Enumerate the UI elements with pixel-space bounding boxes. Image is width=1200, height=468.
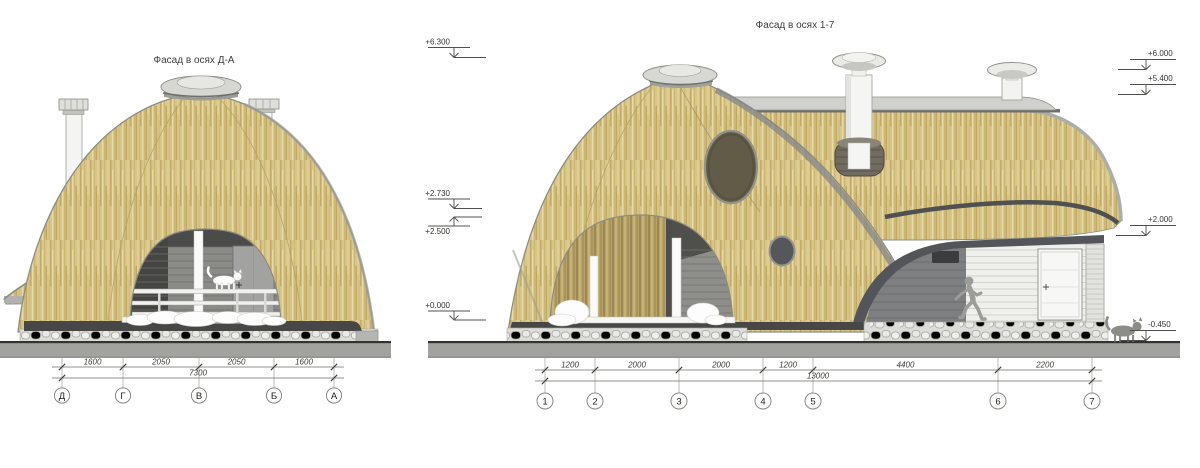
left-skylight-dome [161,76,241,101]
svg-text:+2.730: +2.730 [425,189,450,198]
left-porch-post [194,231,203,323]
svg-text:+2.000: +2.000 [1148,215,1173,224]
right-skylight-dome [643,65,717,89]
round-window-large [705,131,757,203]
dim-segment: 1600 [84,358,102,367]
svg-text:+2.500: +2.500 [425,227,450,236]
elevation-mark: +0.000 [425,301,486,320]
svg-text:+6.000: +6.000 [1148,49,1173,58]
annex-corner-boards [1086,244,1104,323]
drawing-sheet: Фасад в осях Д-А [0,0,1200,468]
round-window-small [770,237,795,266]
axis-label: 5 [810,397,815,408]
right-chimney-short [988,63,1037,101]
left-ground [0,341,391,358]
dim-segment: 2000 [711,361,730,370]
right-annex [853,235,1104,323]
right-axis-bubbles: 1 2 3 4 5 6 7 [537,393,1100,409]
facade-1-7-drawing: Фасад в осях 1-7 [425,20,1180,409]
svg-text:+5.400: +5.400 [1148,74,1173,83]
dim-segment: 2050 [227,358,246,367]
axis-label: 4 [760,397,765,408]
axis-label: 2 [592,397,597,408]
facade-d-a-drawing: Фасад в осях Д-А [0,55,391,403]
elevation-mark: +5.400 [1118,74,1176,95]
right-dimensions: 1200 2000 2000 1200 4400 2200 13000 1 2 [535,358,1102,409]
left-facade-title: Фасад в осях Д-А [154,55,235,66]
dim-total: 13000 [807,372,830,381]
axis-label: 7 [1089,397,1094,408]
dim-total: 7300 [189,369,207,378]
facade-drawings-canvas: Фасад в осях Д-А [0,0,1200,468]
axis-label: Б [271,391,277,402]
right-ground [428,341,1180,358]
dim-segment: 1200 [561,361,579,370]
right-arch-post-b [672,238,681,323]
axis-label: В [196,391,202,402]
dim-segment: 1600 [295,358,313,367]
svg-text:-0.450: -0.450 [1148,320,1171,329]
gray-cat-silhouette [1106,317,1142,342]
axis-label: 6 [995,397,1000,408]
left-dimensions: 1600 2050 2050 1600 7300 Д Г В Б А [52,358,344,404]
elevation-marks-right: +6.000 +5.400 +2.000 -0.450 [1116,49,1176,341]
annex-slot-window [932,251,959,263]
dim-segment: 2200 [1035,361,1054,370]
svg-text:+6.300: +6.300 [425,38,450,47]
dim-segment: 2000 [627,361,646,370]
left-axis-bubbles: Д Г В Б А [54,388,341,403]
axis-label: 1 [542,397,547,408]
axis-label: А [331,391,338,402]
elevation-mark: +6.300 [425,38,486,58]
dim-segment: 2050 [151,358,170,367]
axis-label: 3 [676,397,681,408]
dim-segment: 4400 [897,361,915,370]
dim-segment: 1200 [779,361,797,370]
elevation-mark: +2.000 [1116,215,1176,236]
elevation-mark: +6.000 [1118,49,1176,70]
axis-label: Д [59,391,66,402]
right-arch-post-a [590,256,598,323]
elevation-marks-left: +6.300 +2.730 +2.500 +0.000 [425,38,486,321]
elevation-mark: +2.730 [425,189,482,209]
svg-text:+0.000: +0.000 [425,301,450,310]
axis-label: Г [120,391,125,402]
right-facade-title: Фасад в осях 1-7 [756,20,835,31]
elevation-mark: +2.500 [425,217,482,236]
annex-door [1038,249,1082,320]
